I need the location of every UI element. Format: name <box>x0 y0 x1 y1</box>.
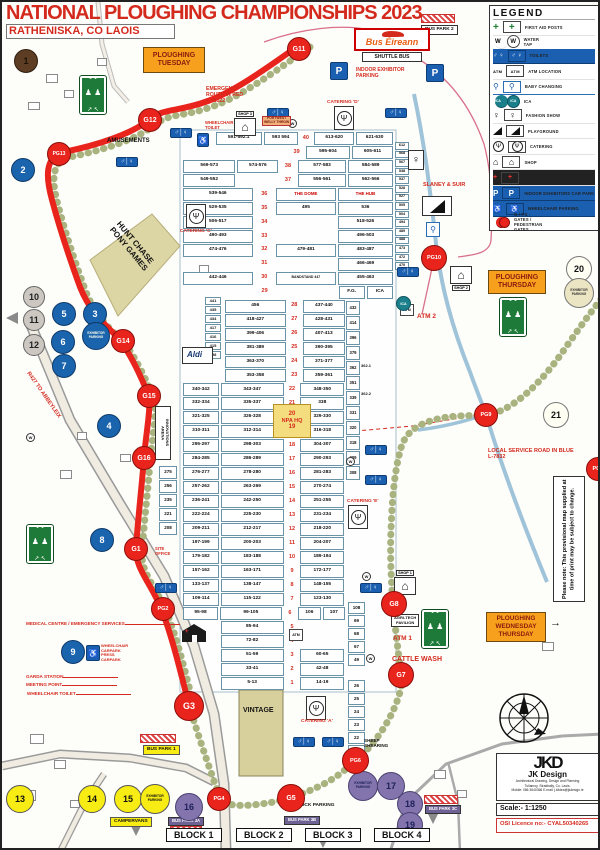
grid-row: 442-44630BANDSTAND 447455-463 <box>183 272 393 285</box>
playground-icon <box>422 196 452 216</box>
parking-zone-marker: 15 <box>114 785 142 813</box>
stand-block: 68 <box>348 628 365 640</box>
stand-block: 278-280 <box>221 467 284 480</box>
legend-item-label: FASHION SHOW <box>526 113 560 118</box>
stand-block: 204-207 <box>300 537 344 550</box>
stand-block: 441 <box>205 297 221 305</box>
avenue-number: 31 <box>255 258 274 271</box>
stand-block: 348-350 <box>300 383 344 396</box>
atm-icon <box>506 65 524 77</box>
toilets-icon <box>365 445 387 455</box>
parking-zone-marker: EXHIBITOR PARKING <box>82 322 110 350</box>
jk-design-panel: JKD JK Design Architectural Drawing, Des… <box>496 753 599 801</box>
gate-marker: G5 <box>277 784 305 812</box>
stand-block: 242-250 <box>221 495 284 508</box>
stand-block: F.G. <box>339 286 365 299</box>
assembly-figures <box>505 305 522 321</box>
grid-row: 284-285286-28917290-293 <box>183 453 393 466</box>
stand-block: 363-370 <box>225 356 286 369</box>
stand-block: ICA <box>367 286 393 299</box>
grid-row: 539-54636THE DOMETHE HUB <box>183 188 393 201</box>
bus-park-1-label: BUS PARK 1 <box>143 745 180 755</box>
avenue-number: 35 <box>255 202 274 215</box>
osi-licence-box: OSI Licence no:- CYAL50340265 <box>496 818 599 833</box>
stand-block: 275 <box>159 466 177 479</box>
legend-item-label: FIRST AID POSTS <box>525 25 563 30</box>
stand-block: 353-358 <box>225 369 286 382</box>
legend-item-label: BABY CHANGING <box>525 84 563 89</box>
amusements-label: AMUSEMENTS <box>107 138 150 145</box>
stand-block: 538 <box>395 168 409 176</box>
direction-arrow: → <box>550 617 561 630</box>
grid-row: 569-573574-57638577-583584-589 <box>183 160 393 173</box>
avenue-number: 28 <box>288 300 301 313</box>
first-aid-icon <box>503 21 521 33</box>
stand-block: 60-65 <box>300 649 344 662</box>
stand-block: 399-406 <box>225 328 286 341</box>
stand-block: 251-255 <box>300 495 344 508</box>
grid-row: 474-47632479-481483-487 <box>183 244 393 257</box>
stand-block: 108 <box>348 602 365 614</box>
stand-block: 225-230 <box>221 509 284 522</box>
toilets-icon <box>360 583 382 593</box>
stand-block: 473 <box>395 245 409 253</box>
stand-block: 14-19 <box>300 677 344 690</box>
stand-block: 455-463 <box>338 272 393 285</box>
stand-block: 527 <box>395 194 409 202</box>
avenue-number: 22 <box>286 383 299 396</box>
stand-block: 189-194 <box>300 551 344 564</box>
block-2-label: BLOCK 2 <box>236 828 292 842</box>
scale-box: Scale:- 1:1250 <box>496 803 599 816</box>
stand-block: 466-469 <box>338 258 393 271</box>
grid-row: 506-51734518-526 <box>183 216 393 229</box>
stand-block: 222-224 <box>183 509 219 522</box>
gate-marker: PG10 <box>421 245 447 271</box>
assembly-sign-label: Emergency assembly point <box>502 338 524 345</box>
avenue-number: 17 <box>286 453 299 466</box>
bus-company-tag <box>140 734 176 743</box>
bus-eireann-label: Bus Éireann <box>366 37 419 47</box>
legend-item: ICA <box>495 95 508 108</box>
building <box>60 470 72 479</box>
page-subtitle: RATHENISKA, CO LAOIS <box>6 24 175 39</box>
stand-block: 221 <box>159 508 177 521</box>
bus-eireann-dog-icon <box>382 31 404 37</box>
avenue-number: 2 <box>286 663 299 676</box>
stand-block: 432 <box>346 301 360 315</box>
shuttle-bus-label: SHUTTLE BUS <box>362 52 422 62</box>
avenue-number: 12 <box>286 523 299 536</box>
wheelchair-parking-icon <box>86 645 100 661</box>
stand-block: 331 <box>346 406 360 420</box>
gate-marker: PG9 <box>474 403 498 427</box>
parking-zone-marker: 21 <box>543 402 569 428</box>
stand-block: 138-147 <box>221 579 284 592</box>
building <box>30 734 44 744</box>
parking-zone-marker: EXHIBITOR PARKING <box>348 771 378 801</box>
parking-zone-marker: 2 <box>11 158 35 182</box>
grid-row: 197-199200-20311204-207 <box>183 537 393 550</box>
stand-block: THE HUB <box>338 188 393 201</box>
stand-block: 549-552 <box>183 174 235 187</box>
stand-block: 99-105 <box>220 607 282 620</box>
stand-block: 505 <box>395 202 409 210</box>
jk-design-line3: Mobile: 086 3640366 E-mail: j.kildea@jkd… <box>497 788 598 792</box>
shop-label: SHOP 3 <box>236 111 254 117</box>
building <box>77 432 87 440</box>
stand-block: 417 <box>205 324 221 332</box>
legend-item-label: WHEELCHAIR PARKING <box>528 206 579 211</box>
water-tap-icon <box>346 457 355 466</box>
avenue-number: 32 <box>255 244 274 257</box>
stand-block: 115-122 <box>221 593 284 606</box>
parking-zone-marker: 12 <box>23 334 45 356</box>
stand-block: 494 <box>395 219 409 227</box>
assembly-arrows-bottom <box>34 548 46 564</box>
avenue-number: 1 <box>286 677 299 690</box>
stand-block: 351 <box>346 376 360 390</box>
stand-block: 418-427 <box>225 314 286 327</box>
stand-block: 390-395 <box>303 342 346 355</box>
stand-362-1-label: 362.1 <box>361 364 371 369</box>
gate-marker: G15 <box>137 384 161 408</box>
stand-block: 416 <box>205 333 221 341</box>
stand-362-2-label: 362.2 <box>361 392 371 397</box>
npa-hq-block: 20 NPA HQ 19 <box>273 404 311 438</box>
bus-company-tag <box>421 14 455 23</box>
stand-block: 209-211 <box>183 523 219 536</box>
stand-block: 172-177 <box>300 565 344 578</box>
avenue-number: 30 <box>255 272 274 285</box>
toilets-icon <box>385 108 407 118</box>
stand-block: 320 <box>346 421 360 435</box>
stand-block: 25 <box>348 693 365 705</box>
stand-block: 49 <box>348 654 365 666</box>
parking-zone-marker: EXHIBITOR PARKING <box>140 784 170 814</box>
indoor-exhibitor-parking-label: INDOOR EXHIBITOR PARKING <box>356 68 405 80</box>
stand-block: 569-573 <box>183 160 235 173</box>
stand-block: 107 <box>323 607 345 620</box>
stand-block: 95-98 <box>183 607 218 620</box>
npa-hq-20: 20 <box>289 411 296 418</box>
catering-icon <box>334 106 354 130</box>
stand-block: 343-347 <box>221 383 284 396</box>
legend-item: FASHION SHOW <box>493 108 595 124</box>
stand-block: 437-440 <box>303 300 346 313</box>
avenue-number: 37 <box>280 174 296 187</box>
stand-strip-right-lower: 1086968674926252423222120 <box>348 602 365 770</box>
atm-icon <box>289 629 303 641</box>
block-3-label: BLOCK 3 <box>305 828 361 842</box>
stand-block: 442-446 <box>183 272 253 285</box>
stand-block: 396 <box>346 331 360 345</box>
stand-block: 308 <box>346 466 360 480</box>
avenue-number: 18 <box>286 439 299 452</box>
parking-zone-marker: 16 <box>175 793 203 821</box>
stand-block: 123-130 <box>300 593 344 606</box>
stand-block: 556-561 <box>298 174 347 187</box>
legend-item: G / PG - GATES / PEDESTRIAN GATES <box>496 217 507 228</box>
toilets-icon <box>365 475 387 485</box>
stand-block: 235 <box>159 494 177 507</box>
stand-block: 472 <box>395 254 409 262</box>
stand-block: 496-503 <box>338 230 393 243</box>
stand-block: 133-137 <box>183 579 219 592</box>
toilets-icon <box>293 737 315 747</box>
stand-block: 488 <box>395 237 409 245</box>
assembly-sign-label: Emergency assembly point <box>29 565 51 572</box>
indoor-carpark-icon <box>502 187 520 199</box>
baby-changing-icon <box>426 222 440 237</box>
stand-block: THE DOME <box>276 188 336 201</box>
route-arrow-icon <box>6 312 18 324</box>
stand-strip-left: 275256235221208 <box>159 466 177 535</box>
legend-item-label: MEDICAL CENTRE <box>523 175 562 180</box>
portwest-welly-throw-label: PORTWEST WELLY THROW <box>262 116 291 126</box>
assembly-arrows-bottom <box>87 99 99 115</box>
assembly-figures <box>32 532 49 548</box>
atm2-label: ATM 2 <box>417 313 436 320</box>
parking-zone-marker: 13 <box>6 785 34 813</box>
atm1-label: ATM 1 <box>393 635 412 642</box>
building <box>64 90 74 98</box>
stand-block: 286-289 <box>221 453 284 466</box>
stand-block: 295-297 <box>183 439 219 452</box>
grid-row: 31466-469 <box>183 258 393 271</box>
grid-row: 490-49333496-503 <box>183 230 393 243</box>
legend-item-label: WATER TAP <box>524 37 539 47</box>
stand-block: 276-277 <box>183 467 219 480</box>
shop-icon <box>502 156 520 168</box>
avenue-number: 15 <box>286 481 299 494</box>
avenue-number: 11 <box>286 537 299 550</box>
catering-a-label: CATERING 'A' <box>301 719 333 725</box>
stand-block: 183-188 <box>221 551 284 564</box>
stand-strip-hub: 6125685675385375285275055044944894884734… <box>395 142 409 270</box>
avenue-number: 13 <box>286 509 299 522</box>
gate-marker: PG13 <box>47 142 71 166</box>
stand-block: 434 <box>205 315 221 323</box>
stand-block: 359-361 <box>303 369 346 382</box>
avenue-number: 6 <box>284 607 297 620</box>
water-tap-icon <box>507 35 520 48</box>
gate-marker: G7 <box>388 662 414 688</box>
avenue-number: 29 <box>255 286 274 299</box>
fashion-show-icon <box>504 109 522 121</box>
stand-block: 157-162 <box>183 565 219 578</box>
baby-changing-icon <box>503 81 521 93</box>
avenue-number: 38 <box>280 160 296 173</box>
stand-block: 218-220 <box>300 523 344 536</box>
stand-block: 106 <box>298 607 320 620</box>
wheelchair-toilet-top-label: WHEELCHAIR TOILET <box>205 121 233 131</box>
catering-icon <box>186 204 206 228</box>
stand-block: 371-377 <box>303 356 346 369</box>
stand-block: 479-481 <box>276 244 336 257</box>
toilets-icon <box>508 50 526 62</box>
stand-block: 51-59 <box>221 649 284 662</box>
stand-block: 414 <box>346 316 360 330</box>
page-title: NATIONAL PLOUGHING CHAMPIONSHIPS 2023 <box>6 2 422 25</box>
stand-block: 537 <box>395 176 409 184</box>
stand-block: 310-311 <box>183 425 219 438</box>
indoor-carpark-icon <box>426 64 444 82</box>
stand-block: 518-526 <box>338 216 393 229</box>
sheep-shearing-label: SHEEP SHEARING <box>364 738 388 749</box>
emergency-assembly-point-icon: Emergency assembly point <box>27 525 53 563</box>
building <box>97 58 107 66</box>
grid-row: 549-55237556-561562-566 <box>183 174 393 187</box>
ploughing-tuesday-sign: PLOUGHING TUESDAY <box>143 47 205 73</box>
stand-block: 85-94 <box>221 621 284 634</box>
stand-block: 231-234 <box>300 509 344 522</box>
stand-block: 332-334 <box>183 397 219 410</box>
stand-block: BANDSTAND 447 <box>276 272 336 285</box>
legend-item-label: G / PG - GATES / PEDESTRIAN GATES <box>514 212 542 232</box>
parking-zone-marker: 9 <box>61 640 85 664</box>
stand-block: 23 <box>348 719 365 731</box>
medical-centre-icon <box>501 172 519 184</box>
assembly-sign-label: Emergency assembly point <box>82 116 104 123</box>
avenue-number: 9 <box>286 565 299 578</box>
legend-items: FIRST AID POSTS WATER TAP TOILETS ATM LO… <box>493 20 595 228</box>
stand-block: 539-546 <box>183 188 253 201</box>
bus-company-tag <box>424 795 458 804</box>
emergency-assembly-point-icon: Emergency assembly point <box>500 298 526 336</box>
ica-icon <box>396 296 411 311</box>
stand-block: 270-274 <box>300 481 344 494</box>
stand-block: 379 <box>346 346 360 360</box>
service-road-label: LOCAL SERVICE ROAD IN BLUE L-7832 <box>488 448 574 461</box>
stand-block: 536 <box>338 202 393 215</box>
bus-park-3c-label: BUS PARK 3C <box>425 805 461 814</box>
stand-block: 595-604 <box>306 146 350 159</box>
slaney-suir-label: SLANEY & SUIR <box>423 182 465 188</box>
legend-item-label: TOILETS <box>530 53 549 58</box>
parking-zone-marker: 6 <box>51 330 75 354</box>
assembly-arrows-top <box>87 67 99 83</box>
avenue-number: 27 <box>288 314 301 327</box>
assembly-figures <box>85 83 102 99</box>
stand-block: 495 <box>276 202 336 215</box>
avenue-number: 7 <box>286 593 299 606</box>
legend-item-label: ICA <box>524 99 532 104</box>
wheelchair-carpark-label: WHEELCHAIR CARPARK PRESS CARPARK <box>101 644 128 662</box>
legend-item-label: SHOP <box>524 160 536 165</box>
water-tap-icon <box>366 654 375 663</box>
medical-centre-label: MEDICAL CENTRE / EMERGENCY SERVICES <box>26 621 125 626</box>
stand-block: 284-285 <box>183 453 219 466</box>
stand-block: 483-487 <box>338 244 393 257</box>
legend-item-label: ATM LOCATION <box>528 69 561 74</box>
provisional-note: Please note: This provisional map suppli… <box>562 477 577 601</box>
shuttle-bus-panel: Bus Éireann SHUTTLE BUS <box>354 28 430 62</box>
stand-block: 489 <box>395 228 409 236</box>
catering-icon <box>508 141 526 153</box>
shop-label: SHOP 2 <box>452 285 470 291</box>
stand-block: 236-241 <box>183 495 219 508</box>
legend-item: CATERING <box>493 139 595 155</box>
parking-zone-marker: 14 <box>78 785 106 813</box>
avenue-number: 24 <box>288 356 301 369</box>
stand-block: 584-589 <box>348 160 393 173</box>
stand-block: 528 <box>395 185 409 193</box>
legend-item: INDOOR EXHIBITORS CAR PARK <box>493 186 595 202</box>
stand-block: 362 <box>346 361 360 375</box>
aldi-label: Aldi <box>182 347 213 364</box>
campervans-label: CAMPERVANS <box>110 817 152 827</box>
stand-block: 339 <box>346 391 360 405</box>
gate-marker: G14 <box>111 329 135 353</box>
gate-marker: G11 <box>287 37 311 61</box>
stand-block: 72-82 <box>221 635 284 648</box>
stand-block: 621-630 <box>356 132 393 145</box>
ploughing-wednesday-thursday-sign: PLOUGHING WEDNESDAY THURSDAY <box>486 612 546 642</box>
toilets-icon <box>322 737 344 747</box>
shop-label: SHOP 1 <box>396 570 414 576</box>
grid-row: 591-592.1593 59440613-620621-630 <box>183 132 393 145</box>
wheelchair-toilet-label: WHEELCHAIR TOILET <box>27 691 76 696</box>
avenue-number: 36 <box>255 188 274 201</box>
avenue-number: 16 <box>286 467 299 480</box>
stand-block: 568 <box>395 151 409 159</box>
avenue-number: 26 <box>288 328 301 341</box>
stand-block: 200-203 <box>221 537 284 550</box>
parking-zone-marker: 8 <box>90 528 114 552</box>
avenue-number: 23 <box>288 369 301 382</box>
emergency-assembly-point-icon: Emergency assembly point <box>422 610 448 648</box>
stand-block: 381-389 <box>225 342 286 355</box>
avenue-number: 25 <box>288 342 301 355</box>
avenue-number: 40 <box>300 132 313 145</box>
stand-block: 504 <box>395 211 409 219</box>
avenue-number: 34 <box>255 216 274 229</box>
legend-item-label: PLAYGROUND <box>528 129 559 134</box>
parking-zone-marker: EXHIBITOR PARKING <box>564 278 594 308</box>
fashion-show-icon <box>408 150 424 170</box>
provisional-note-box: Please note: This provisional map suppli… <box>553 476 585 602</box>
catering-d-label: CATERING 'D' <box>327 100 359 106</box>
block-1-label: BLOCK 1 <box>166 828 222 842</box>
avenue-number: 39 <box>290 146 304 159</box>
assembly-arrows-top <box>429 601 441 617</box>
stand-block: 298-303 <box>221 439 284 452</box>
stand-block: 593 594 <box>264 132 298 145</box>
gate-marker: G16 <box>132 446 156 470</box>
parking-zone-marker: 5 <box>52 302 76 326</box>
npa-hq-19: 19 <box>289 424 296 431</box>
parking-zone-marker: 4 <box>97 414 121 438</box>
catering-icon <box>348 505 368 529</box>
stand-block: 577-583 <box>298 160 347 173</box>
parking-zone-marker: 7 <box>52 354 76 378</box>
stand-block: 613-620 <box>314 132 354 145</box>
stand-block: 435 <box>205 306 221 314</box>
vintage-area <box>239 690 283 776</box>
bus-eireann-brand: Bus Éireann <box>354 28 430 51</box>
assembly-arrows-bottom <box>507 321 519 337</box>
gate-marker: PG2 <box>151 597 175 621</box>
water-tap-icon <box>362 572 371 581</box>
building <box>46 74 58 83</box>
legend-panel: LEGEND FIRST AID POSTS WATER TAP TOILETS… <box>489 5 599 231</box>
stand-block: 109-114 <box>183 593 219 606</box>
gate-marker: G3 <box>174 691 204 721</box>
legend-item: FIRST AID POSTS <box>493 20 595 36</box>
playground-icon <box>506 125 524 137</box>
gate-marker: G1 <box>124 537 148 561</box>
